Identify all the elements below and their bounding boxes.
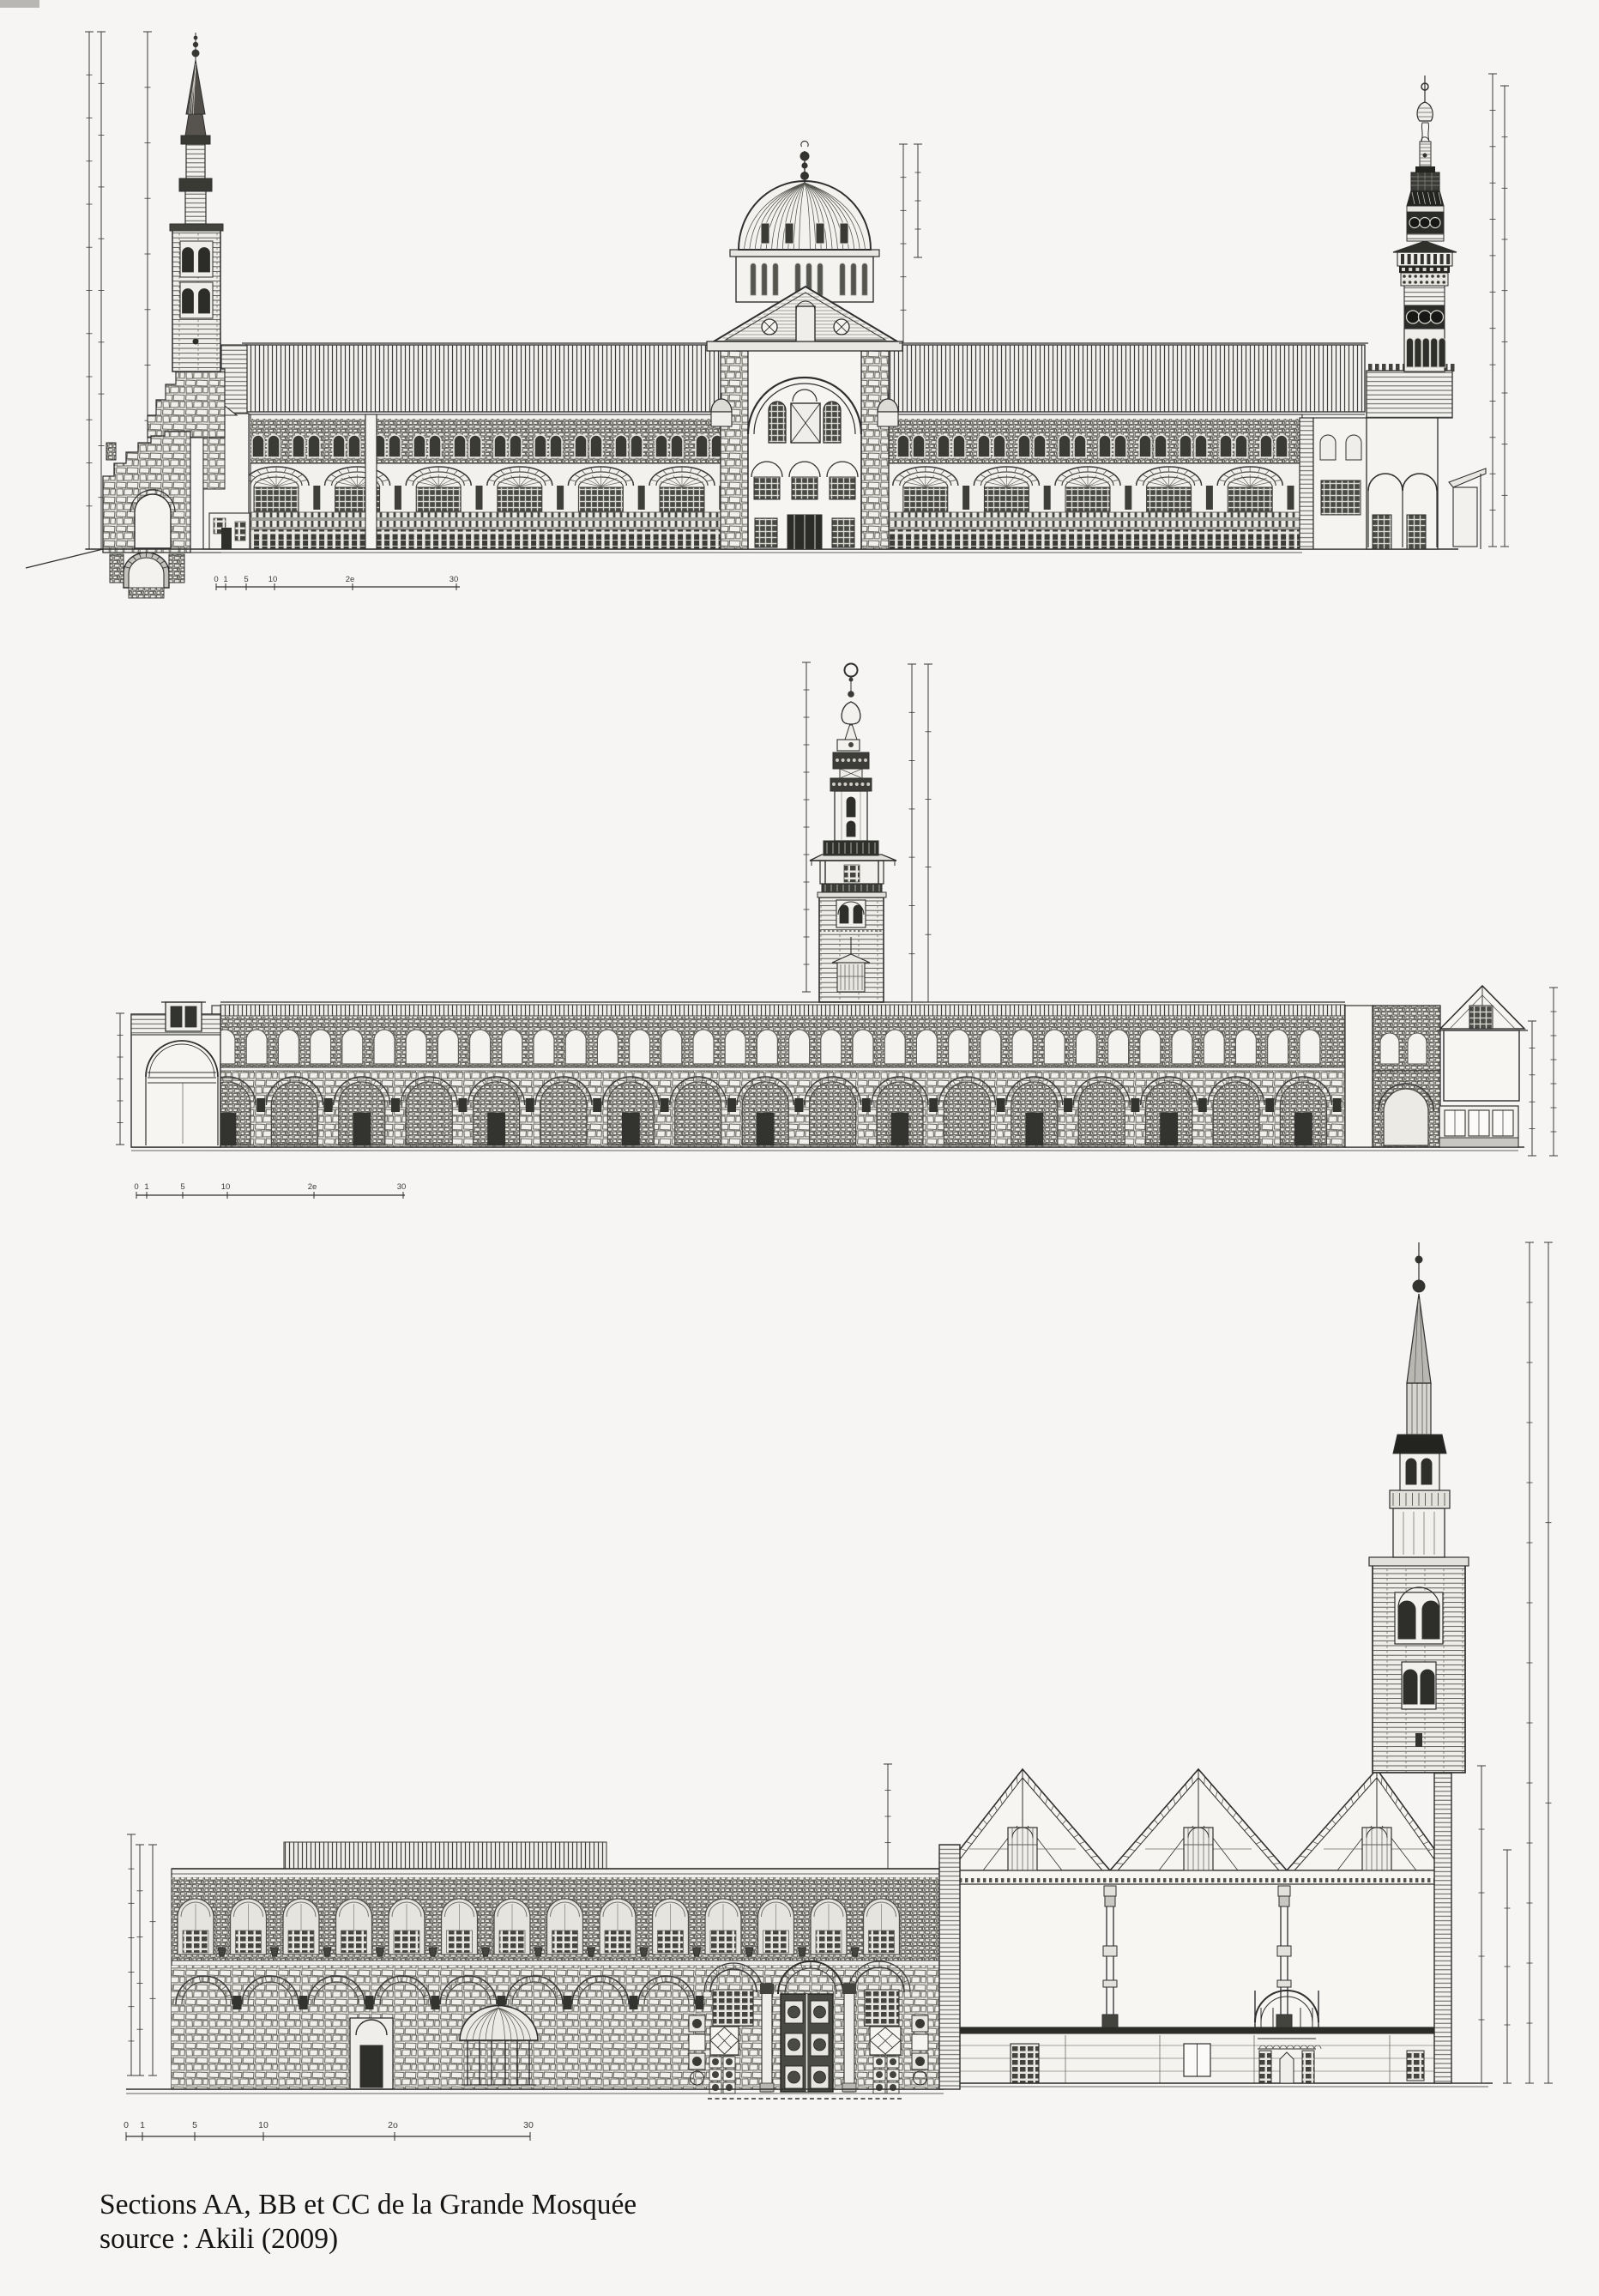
svg-text:5: 5 <box>244 575 248 584</box>
svg-text:0: 0 <box>214 575 218 584</box>
svg-text:30: 30 <box>397 1182 407 1192</box>
svg-text:1: 1 <box>144 1182 148 1192</box>
svg-text:10: 10 <box>221 1182 231 1192</box>
svg-text:1: 1 <box>140 2120 145 2130</box>
svg-text:10: 10 <box>258 2120 269 2130</box>
svg-text:30: 30 <box>523 2120 534 2130</box>
svg-text:Sections AA, BB et CC de la Gr: Sections AA, BB et CC de la Grande Mosqu… <box>100 2189 637 2220</box>
svg-text:30: 30 <box>450 575 459 584</box>
svg-text:5: 5 <box>192 2120 197 2130</box>
svg-text:0: 0 <box>124 2120 129 2130</box>
svg-text:5: 5 <box>180 1182 184 1192</box>
svg-text:1: 1 <box>223 575 227 584</box>
svg-text:0: 0 <box>134 1182 138 1192</box>
svg-text:2e: 2e <box>308 1182 317 1192</box>
svg-text:2o: 2o <box>388 2120 398 2130</box>
svg-text:2e: 2e <box>346 575 355 584</box>
svg-text:10: 10 <box>269 575 278 584</box>
svg-text:source : Akili (2009): source : Akili (2009) <box>100 2223 338 2255</box>
